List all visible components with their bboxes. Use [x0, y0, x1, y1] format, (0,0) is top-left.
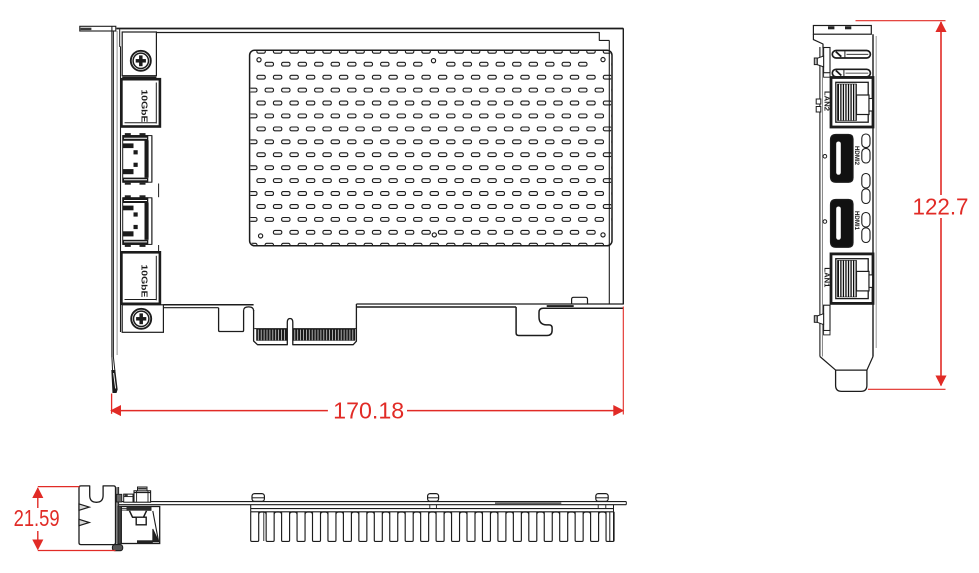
svg-text:10GbE: 10GbE [139, 90, 148, 124]
svg-text:170.18: 170.18 [333, 398, 404, 424]
svg-text:HDMI1: HDMI1 [853, 211, 860, 231]
svg-text:LAN2: LAN2 [822, 91, 829, 111]
svg-text:HDMI2: HDMI2 [853, 146, 860, 166]
svg-text:LAN1: LAN1 [822, 267, 829, 287]
svg-text:122.7: 122.7 [913, 194, 969, 220]
svg-text:21.59: 21.59 [14, 505, 60, 531]
svg-text:10GbE: 10GbE [139, 265, 148, 299]
